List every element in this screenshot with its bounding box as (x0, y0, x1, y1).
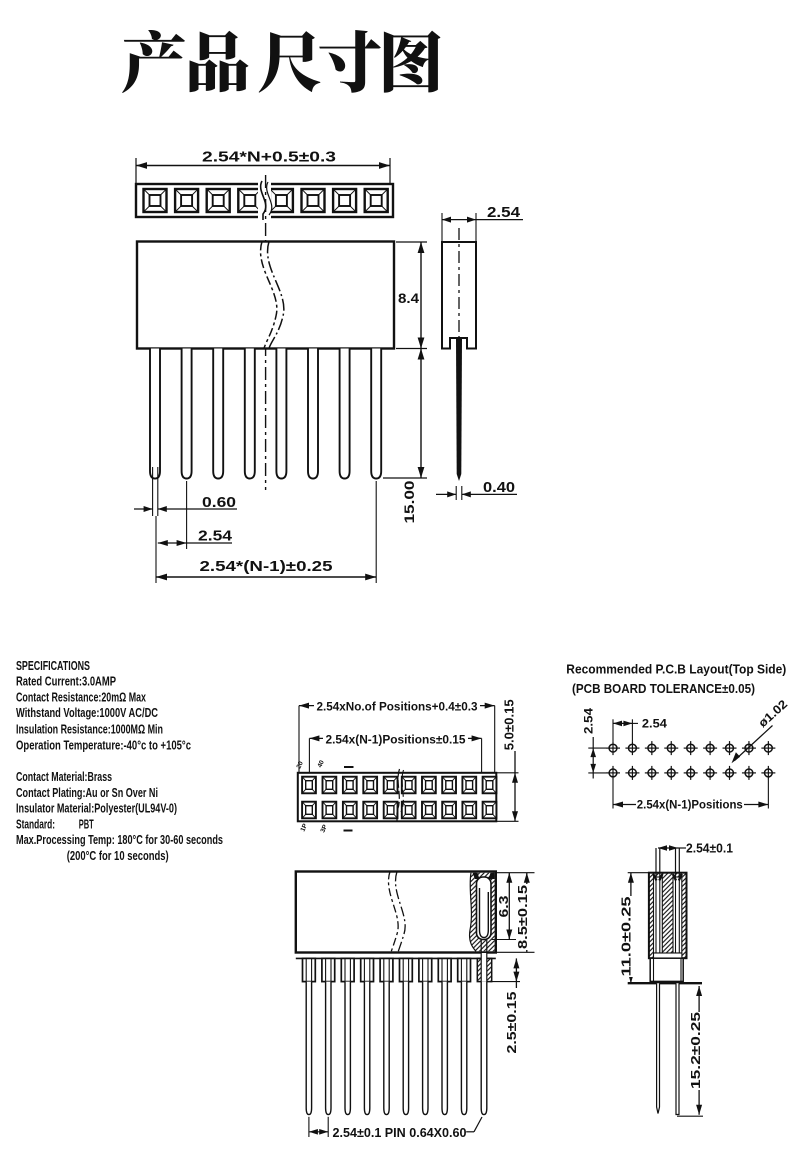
svg-text:Standard:: Standard: (16, 816, 55, 831)
svg-text:2.54*(N-1)±0.25: 2.54*(N-1)±0.25 (200, 558, 333, 575)
svg-text:6.3: 6.3 (497, 895, 511, 917)
svg-text:2.54: 2.54 (487, 204, 521, 221)
svg-text:Insulator Material:Polyester(U: Insulator Material:Polyester(UL94V-0) (16, 801, 177, 816)
svg-text:0.60: 0.60 (202, 494, 236, 511)
svg-text:SPECIFICATIONS: SPECIFICATIONS (16, 658, 90, 673)
svg-text:PBT: PBT (79, 816, 94, 831)
svg-text:2.54±0.1: 2.54±0.1 (686, 841, 733, 855)
svg-text:15.00: 15.00 (401, 480, 417, 523)
svg-text:Contact Material:Brass: Contact Material:Brass (16, 769, 112, 784)
svg-text:Rated Current:3.0AMP: Rated Current:3.0AMP (16, 674, 116, 689)
svg-text:(200°C for 10 seconds): (200°C for 10 seconds) (67, 848, 169, 863)
svg-text:5.0±0.15: 5.0±0.15 (503, 699, 517, 750)
svg-text:8.5±0.15: 8.5±0.15 (516, 885, 530, 949)
svg-text:Contact Resistance:20mΩ Max: Contact Resistance:20mΩ Max (16, 689, 147, 704)
svg-text:Recommended P.C.B Layout(Top: Recommended P.C.B Layout(Top Side) (566, 663, 786, 677)
svg-text:2.54: 2.54 (582, 708, 596, 734)
svg-text:2.54: 2.54 (198, 528, 233, 545)
svg-text:Contact Plating:Au or Sn Over: Contact Plating:Au or Sn Over Ni (16, 785, 158, 800)
svg-text:(PCB BOARD TOLERANCE±0.05): (PCB BOARD TOLERANCE±0.05) (572, 682, 755, 696)
svg-text:Withstand Voltage:1000V AC/DC: Withstand Voltage:1000V AC/DC (16, 705, 158, 720)
svg-text:Insulation Resistance:1000MΩ M: Insulation Resistance:1000MΩ Min (16, 721, 163, 736)
svg-text:0.40: 0.40 (483, 479, 515, 496)
svg-text:2.54*N+0.5±0.3: 2.54*N+0.5±0.3 (202, 149, 336, 166)
svg-text:2.5±0.15: 2.5±0.15 (505, 991, 519, 1053)
svg-text:11.0±0.25: 11.0±0.25 (619, 896, 633, 976)
svg-text:15.2±0.25: 15.2±0.25 (689, 1012, 703, 1089)
svg-text:2.54x(N-1)Positions±0.15: 2.54x(N-1)Positions±0.15 (326, 733, 466, 747)
svg-text:2.54: 2.54 (642, 717, 667, 731)
svg-text:2.54±0.1 PIN 0.64X0.60: 2.54±0.1 PIN 0.64X0.60 (333, 1126, 467, 1140)
svg-text:Max.Processing Temp: 180°C for: Max.Processing Temp: 180°C for 30-60 sec… (16, 832, 223, 847)
svg-text:8.4: 8.4 (398, 290, 419, 306)
svg-text:2.54x(N-1)Positions: 2.54x(N-1)Positions (637, 798, 743, 812)
svg-text:2.54xNo.of Positions+0.4±0.3: 2.54xNo.of Positions+0.4±0.3 (317, 700, 478, 714)
svg-text:Operation Temperature:-40°c to: Operation Temperature:-40°c to +105°c (16, 737, 191, 752)
